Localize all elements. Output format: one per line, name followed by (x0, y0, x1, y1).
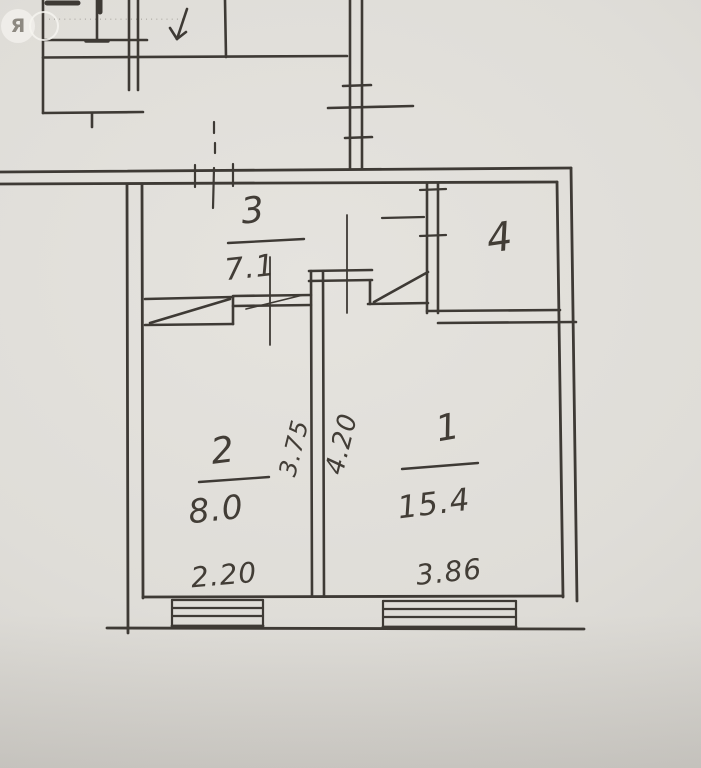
stairwell-wall (328, 0, 413, 168)
room2-number: 2 (209, 429, 238, 473)
room-1-door (309, 215, 428, 313)
partition-wall (311, 271, 324, 596)
room3-number: 3 (239, 189, 267, 232)
floorplan-sheet: 3 7.1 4 2 8.0 1 15.4 2.20 3.86 3.75 4.20 (0, 0, 701, 768)
entrance-dashes (214, 122, 215, 153)
dimension-bottom-left: 2.20 (190, 556, 259, 595)
room3-area: 7.1 (223, 248, 277, 288)
dimension-bottom-right: 3.86 (414, 552, 483, 592)
window-room2 (172, 600, 263, 626)
floorplan-drawing (0, 0, 701, 768)
window-room1 (383, 601, 516, 627)
room2-area: 8.0 (186, 487, 245, 532)
watermark-dotted-text: ········································ (48, 17, 184, 27)
floorplan-photo: 3 7.1 4 2 8.0 1 15.4 2.20 3.86 3.75 4.20… (0, 0, 701, 768)
